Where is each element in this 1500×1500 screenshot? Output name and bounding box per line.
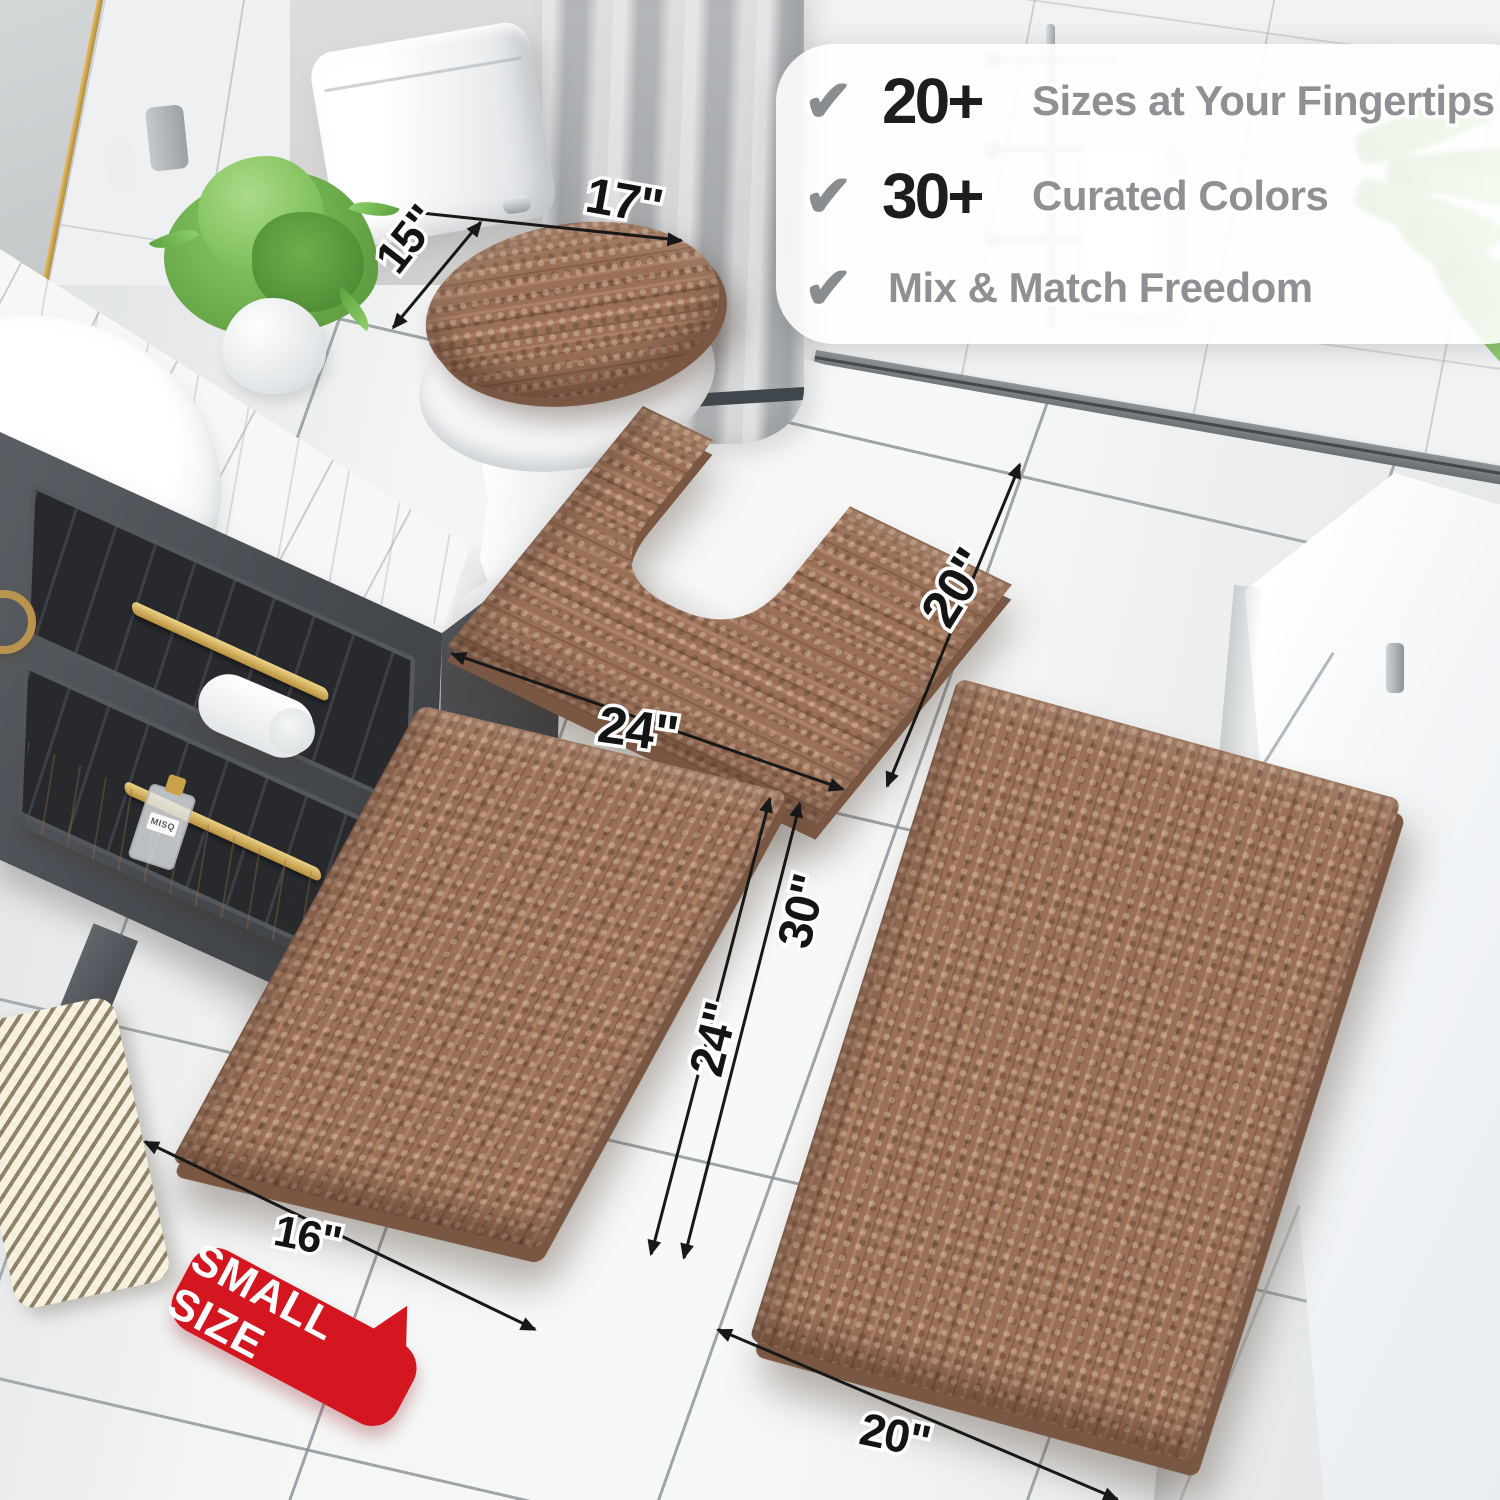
feature-label: Mix & Match Freedom xyxy=(888,264,1313,312)
checkmark-icon: ✔ xyxy=(804,67,882,135)
feature-callout-box: ✔ 20+ Sizes at Your Fingertips ✔ 30+ Cur… xyxy=(776,44,1500,344)
feature-row-mix-match: ✔ Mix & Match Freedom xyxy=(804,254,1500,322)
bathtub-fixture xyxy=(1386,643,1404,693)
checkmark-icon: ✔ xyxy=(804,162,882,230)
feature-stat: 30+ xyxy=(882,159,1032,233)
feature-row-sizes: ✔ 20+ Sizes at Your Fingertips xyxy=(804,64,1500,138)
checkmark-icon: ✔ xyxy=(804,254,882,322)
dim-label-contour-length: 24" xyxy=(594,695,681,765)
feature-row-colors: ✔ 30+ Curated Colors xyxy=(804,159,1500,233)
feature-stat: 20+ xyxy=(882,64,1032,138)
feature-label: Sizes at Your Fingertips xyxy=(1032,77,1495,125)
feature-label: Curated Colors xyxy=(1032,172,1328,220)
counter-cup xyxy=(145,104,189,172)
bottle-label: MISQ xyxy=(146,812,180,837)
product-photo-bath-rug-set: MISQ 15" 17" 20" 24" 24" 30" 16" 20" SMA… xyxy=(0,0,1500,1500)
